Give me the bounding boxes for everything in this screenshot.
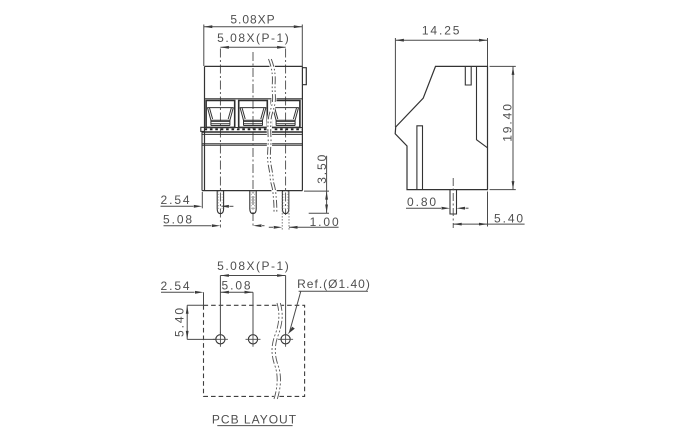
svg-text:5.40: 5.40 [172, 306, 186, 337]
svg-text:2.54: 2.54 [161, 193, 192, 207]
svg-text:19.40: 19.40 [500, 102, 514, 142]
svg-text:PCB LAYOUT: PCB LAYOUT [212, 412, 297, 426]
svg-text:2.54: 2.54 [161, 279, 192, 293]
svg-text:5.08: 5.08 [163, 212, 194, 226]
svg-text:5.40: 5.40 [494, 211, 525, 225]
svg-text:0.80: 0.80 [407, 195, 438, 209]
svg-text:5.08XP: 5.08XP [230, 13, 275, 27]
svg-text:5.08X(P-1): 5.08X(P-1) [217, 31, 290, 45]
svg-text:14.25: 14.25 [422, 24, 462, 38]
svg-text:Ref.(Ø1.40): Ref.(Ø1.40) [297, 277, 371, 291]
svg-text:5.08X(P-1): 5.08X(P-1) [217, 259, 290, 273]
svg-text:1.00: 1.00 [310, 215, 341, 229]
svg-text:5.08: 5.08 [222, 278, 253, 292]
